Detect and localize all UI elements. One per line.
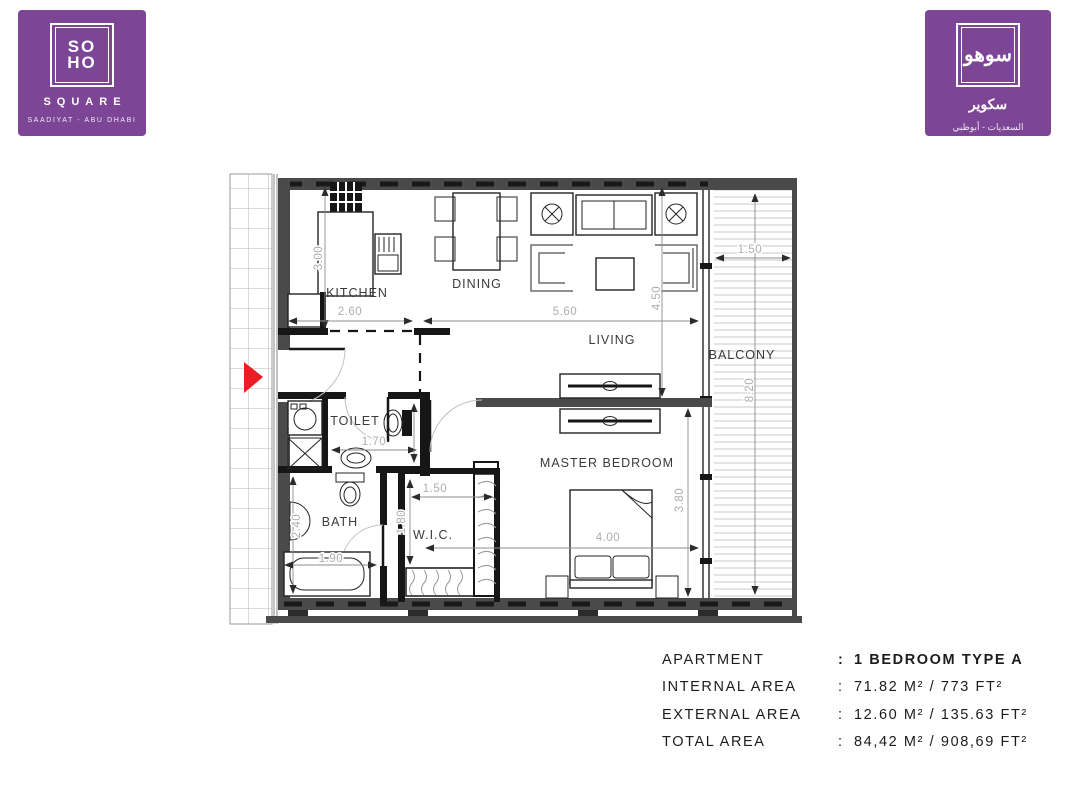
nightstand bbox=[656, 576, 678, 598]
sofa bbox=[576, 195, 652, 235]
soho-logo-mark-arabic: سوهو bbox=[956, 23, 1020, 87]
dim-wic-depth: 1.80 bbox=[396, 510, 408, 534]
detail-row-total-area: TOTAL AREA : 84,42 M² / 908,69 FT² bbox=[662, 729, 1028, 757]
armchair bbox=[655, 245, 697, 291]
detail-separator: : bbox=[838, 734, 854, 750]
detail-value: 71.82 M² / 773 FT² bbox=[854, 679, 1003, 695]
detail-value: 1 BEDROOM TYPE A bbox=[854, 652, 1023, 668]
dim-kitchen-width: 2.60 bbox=[338, 306, 362, 318]
room-label-kitchen: KITCHEN bbox=[326, 286, 388, 300]
detail-separator: : bbox=[838, 707, 854, 723]
room-label-living: LIVING bbox=[589, 333, 636, 347]
dim-balcony-width: 1.50 bbox=[738, 244, 762, 256]
dim-bedroom-width: 4.00 bbox=[596, 532, 620, 544]
dim-toilet-width: 1.70 bbox=[362, 436, 386, 448]
soho-logo-mark: SO HO bbox=[50, 23, 114, 87]
detail-separator: : bbox=[838, 679, 854, 695]
bedroom-furniture bbox=[546, 490, 678, 598]
detail-label: INTERNAL AREA bbox=[662, 679, 838, 695]
wc-icon bbox=[336, 473, 364, 506]
logo-glyph-arabic: سوهو bbox=[964, 46, 1012, 65]
area-details: APARTMENT : 1 BEDROOM TYPE A INTERNAL AR… bbox=[662, 646, 1028, 756]
soho-square-logo-ar: سوهو سكوير السعديات - أبوظبي bbox=[925, 10, 1051, 136]
logo-brand-name-arabic: سكوير bbox=[925, 96, 1051, 113]
lamp-table-icon bbox=[531, 193, 573, 235]
detail-label: APARTMENT bbox=[662, 652, 838, 668]
soho-square-logo-en: SO HO SQUARE SAADIYAT - ABU DHABI bbox=[18, 10, 146, 136]
dim-balcony-length: 8.20 bbox=[744, 378, 756, 402]
detail-label: TOTAL AREA bbox=[662, 734, 838, 750]
doors bbox=[289, 349, 482, 567]
detail-row-external-area: EXTERNAL AREA : 12.60 M² / 135.63 FT² bbox=[662, 701, 1028, 729]
room-label-dining: DINING bbox=[452, 277, 502, 291]
dim-bath-depth: 2.40 bbox=[291, 514, 303, 538]
lamp-table-icon bbox=[655, 193, 697, 235]
detail-value: 12.60 M² / 135.63 FT² bbox=[854, 707, 1028, 723]
logo-location-arabic: السعديات - أبوظبي bbox=[925, 122, 1051, 133]
balcony-glass-wall bbox=[700, 190, 712, 598]
dim-bath-width: 1.90 bbox=[319, 553, 343, 565]
coffee-table bbox=[596, 258, 634, 290]
logo-text-ho: HO bbox=[67, 55, 97, 71]
detail-row-internal-area: INTERNAL AREA : 71.82 M² / 773 FT² bbox=[662, 674, 1028, 702]
room-label-balcony: BALCONY bbox=[709, 348, 776, 362]
detail-label: EXTERNAL AREA bbox=[662, 707, 838, 723]
room-label-wic: W.I.C. bbox=[413, 528, 453, 542]
dim-living-depth: 4.50 bbox=[651, 286, 663, 310]
detail-value: 84,42 M² / 908,69 FT² bbox=[854, 734, 1028, 750]
nightstand bbox=[546, 576, 568, 598]
dining-table bbox=[453, 193, 500, 270]
kitchen-cabinet bbox=[288, 294, 322, 327]
room-label-master-bedroom: MASTER BEDROOM bbox=[540, 456, 674, 470]
apartment-floor-plan: 3.00 2.60 5.60 4.50 1.50 8.20 1.70 1.50 … bbox=[228, 168, 808, 634]
logo-location: SAADIYAT - ABU DHABI bbox=[18, 117, 146, 124]
detail-row-apartment: APARTMENT : 1 BEDROOM TYPE A bbox=[662, 646, 1028, 674]
side-chair bbox=[531, 245, 573, 291]
shaft-icon bbox=[288, 438, 322, 469]
room-label-toilet: TOILET bbox=[330, 414, 380, 428]
toilet-fixtures bbox=[288, 401, 412, 469]
detail-separator: : bbox=[838, 652, 854, 668]
floor-plan-page: SO HO SQUARE SAADIYAT - ABU DHABI سوهو س… bbox=[0, 0, 1076, 800]
room-label-bath: BATH bbox=[322, 515, 358, 529]
living-furniture bbox=[531, 193, 697, 291]
washing-machine-icon bbox=[288, 401, 322, 435]
dim-living-width: 5.60 bbox=[553, 306, 577, 318]
dim-bedroom-depth: 3.80 bbox=[674, 488, 686, 512]
kitchen-counter bbox=[318, 212, 373, 296]
dim-wic-width: 1.50 bbox=[423, 483, 447, 495]
fridge-icon bbox=[375, 234, 401, 274]
corridor-tiles bbox=[230, 174, 277, 624]
washbasin-icon bbox=[341, 448, 371, 468]
dim-kitchen-depth: 3.00 bbox=[313, 246, 325, 270]
logo-brand-name: SQUARE bbox=[18, 96, 146, 108]
dining-set bbox=[435, 193, 517, 270]
